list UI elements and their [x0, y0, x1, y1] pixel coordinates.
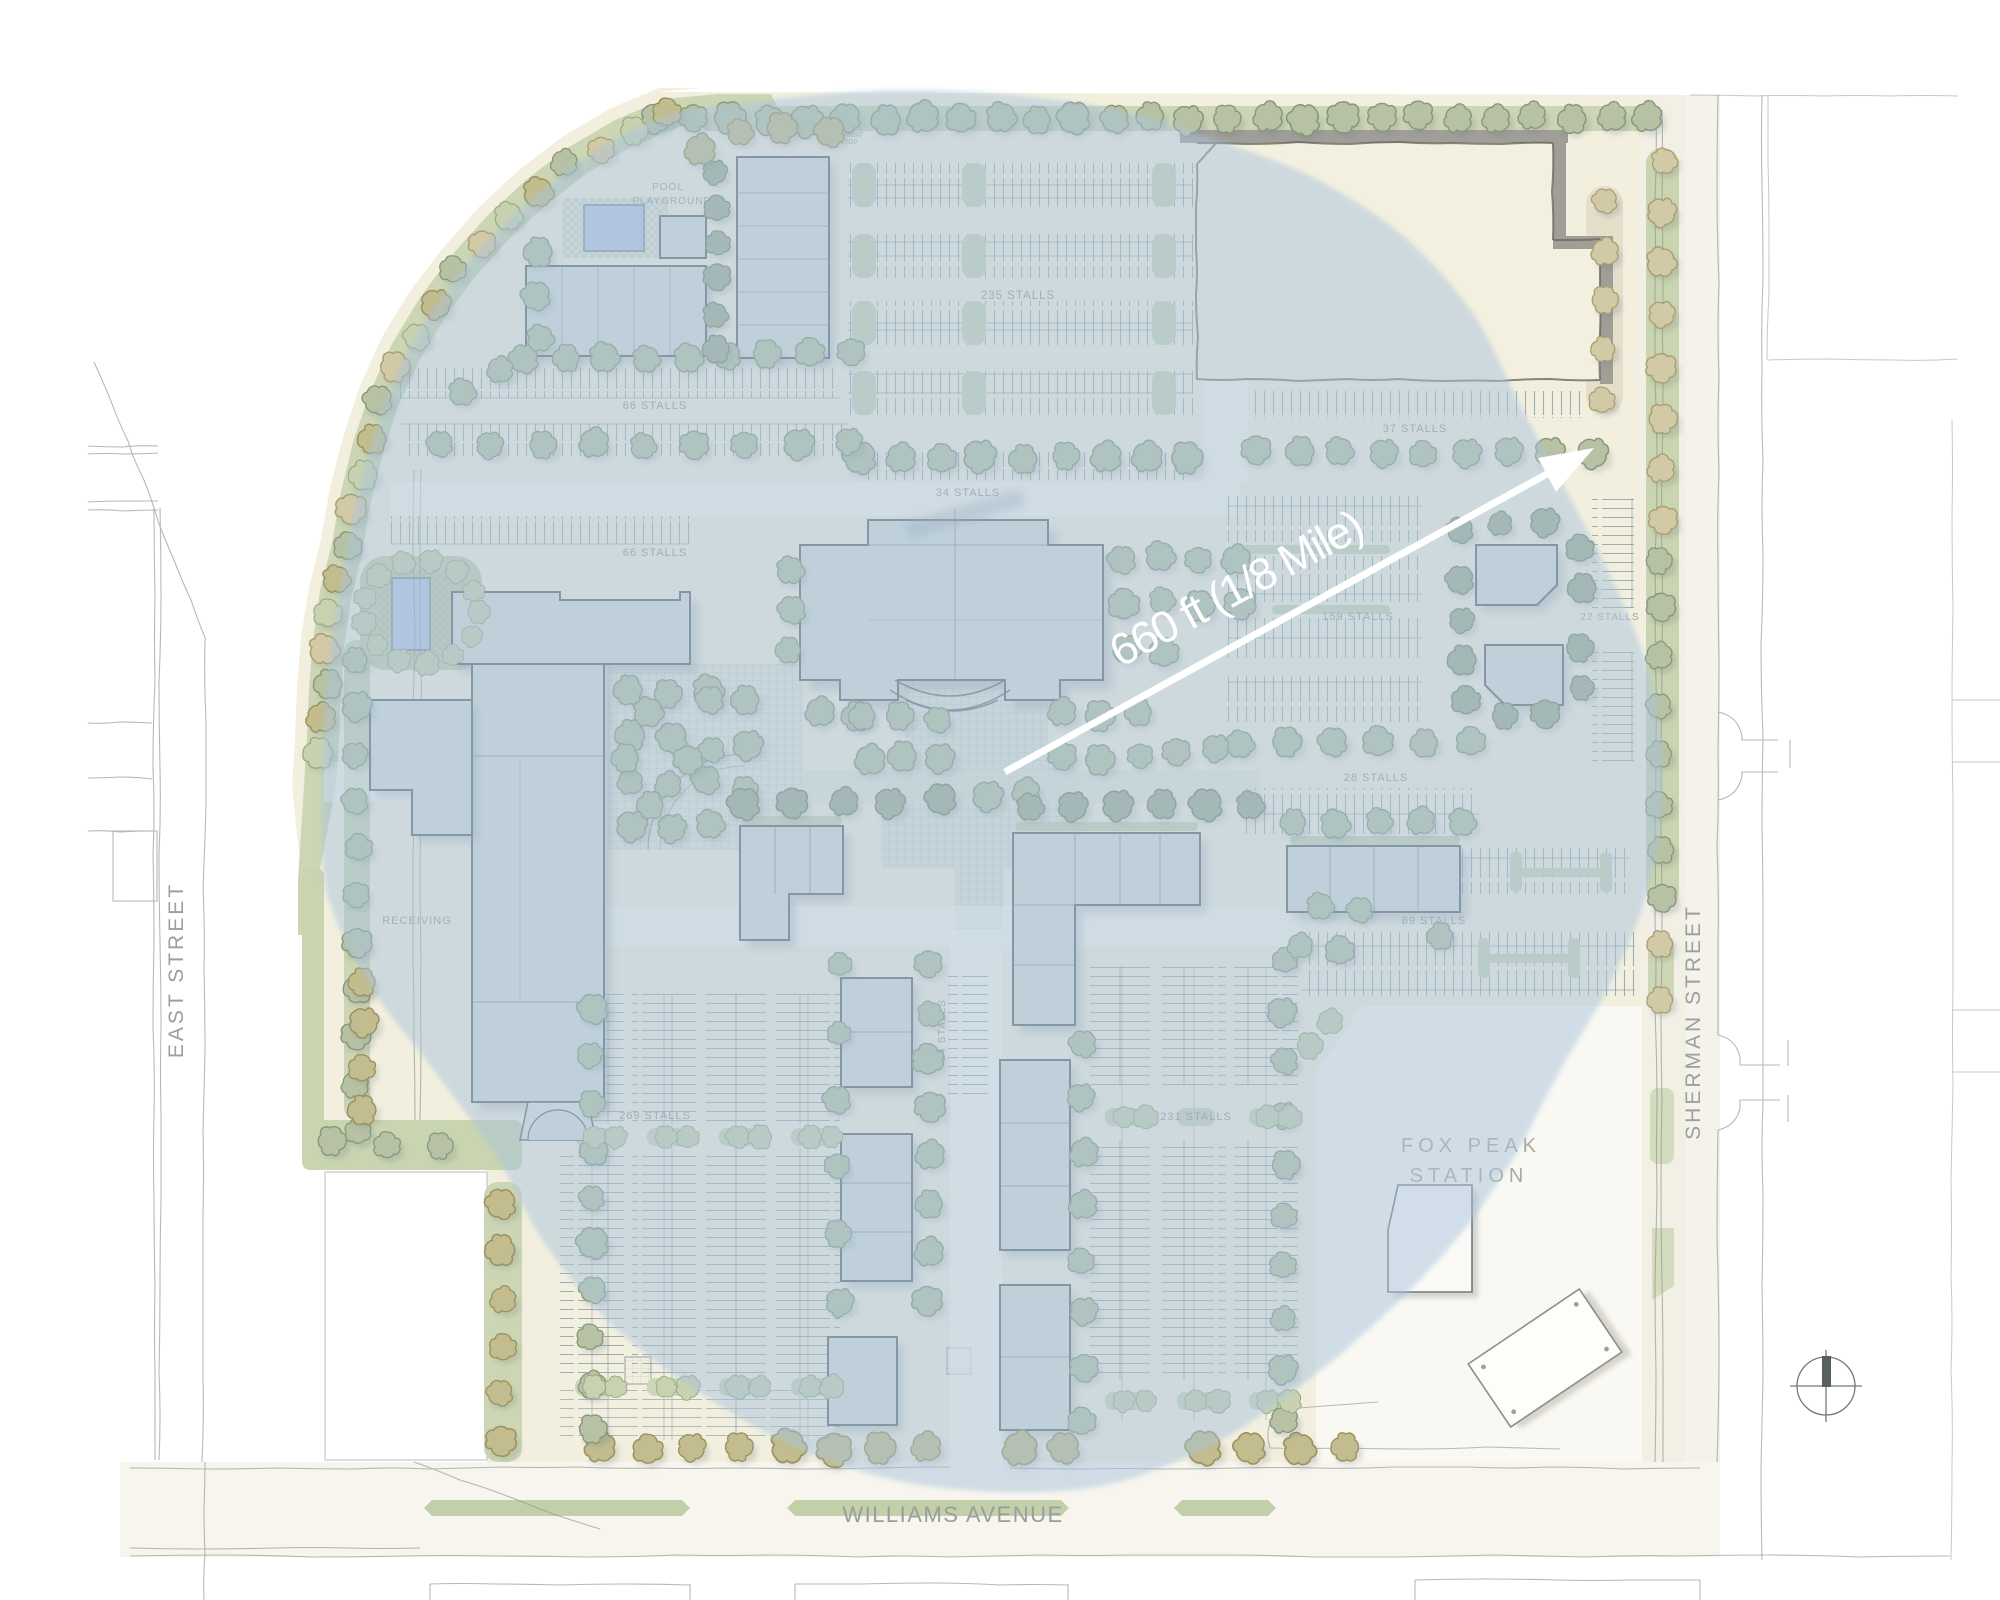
svg-text:EAST STREET: EAST STREET: [165, 882, 188, 1058]
svg-text:SHERMAN STREET: SHERMAN STREET: [1682, 904, 1705, 1140]
svg-text:WILLIAMS AVENUE: WILLIAMS AVENUE: [842, 1502, 1063, 1527]
